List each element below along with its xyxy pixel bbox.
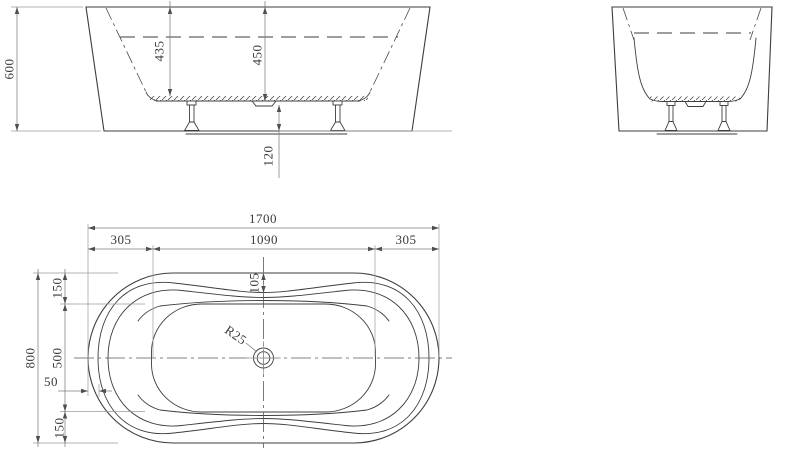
- side-inner-wall-right: [750, 8, 761, 40]
- front-leg-right: [331, 101, 346, 131]
- dim-label-drain-radius: R25: [222, 322, 250, 348]
- side-leg-right: [718, 102, 730, 131]
- dim-label-inner-width: 500: [50, 348, 65, 369]
- side-elevation-view: [612, 7, 772, 134]
- dim-label-right-end-length: 305: [396, 232, 417, 247]
- side-leg-left: [665, 102, 677, 131]
- front-inner-wall-left: [106, 8, 146, 92]
- front-inner-wall-right: [370, 8, 410, 92]
- drawing-canvas: 600 435 450 120: [0, 0, 790, 449]
- dim-label-left-end-length: 305: [111, 232, 132, 247]
- front-elevation-view: 600 435 450 120: [2, 1, 453, 178]
- dim-label-center-length: 1090: [250, 232, 278, 247]
- dim-label-rim-offset-top: 150: [50, 278, 65, 299]
- dim-label-rim-width-end: 50: [44, 374, 58, 389]
- front-tub-outline: [86, 7, 430, 131]
- plan-view: R25 1700 305 1090: [23, 211, 453, 448]
- side-tub-outline: [612, 7, 772, 131]
- side-basin-bowl: [634, 38, 756, 102]
- dim-label-inner-depth-left: 435: [152, 41, 167, 62]
- front-drain-recess: [252, 101, 276, 106]
- dim-label-rim-width-center: 105: [247, 273, 262, 294]
- plan-drain: [246, 341, 281, 375]
- dim-label-rim-offset-bottom: 150: [52, 418, 67, 439]
- dim-label-overall-length: 1700: [249, 211, 277, 226]
- bathtub-technical-drawing: 600 435 450 120: [0, 0, 790, 449]
- side-floor-hatch: [650, 97, 740, 102]
- dim-label-overall-width: 800: [23, 348, 38, 369]
- side-inner-wall-left: [623, 8, 634, 40]
- side-drain-recess: [685, 102, 706, 107]
- front-leg-left: [185, 101, 200, 131]
- dim-label-inner-depth-center: 450: [250, 45, 265, 66]
- dim-label-floor-clearance: 120: [261, 146, 276, 167]
- drain-leader-line: [246, 343, 257, 352]
- front-floor-hatch: [150, 96, 368, 101]
- front-dimensions: 600 435 450 120: [2, 1, 453, 178]
- dim-label-overall-height: 600: [2, 59, 17, 80]
